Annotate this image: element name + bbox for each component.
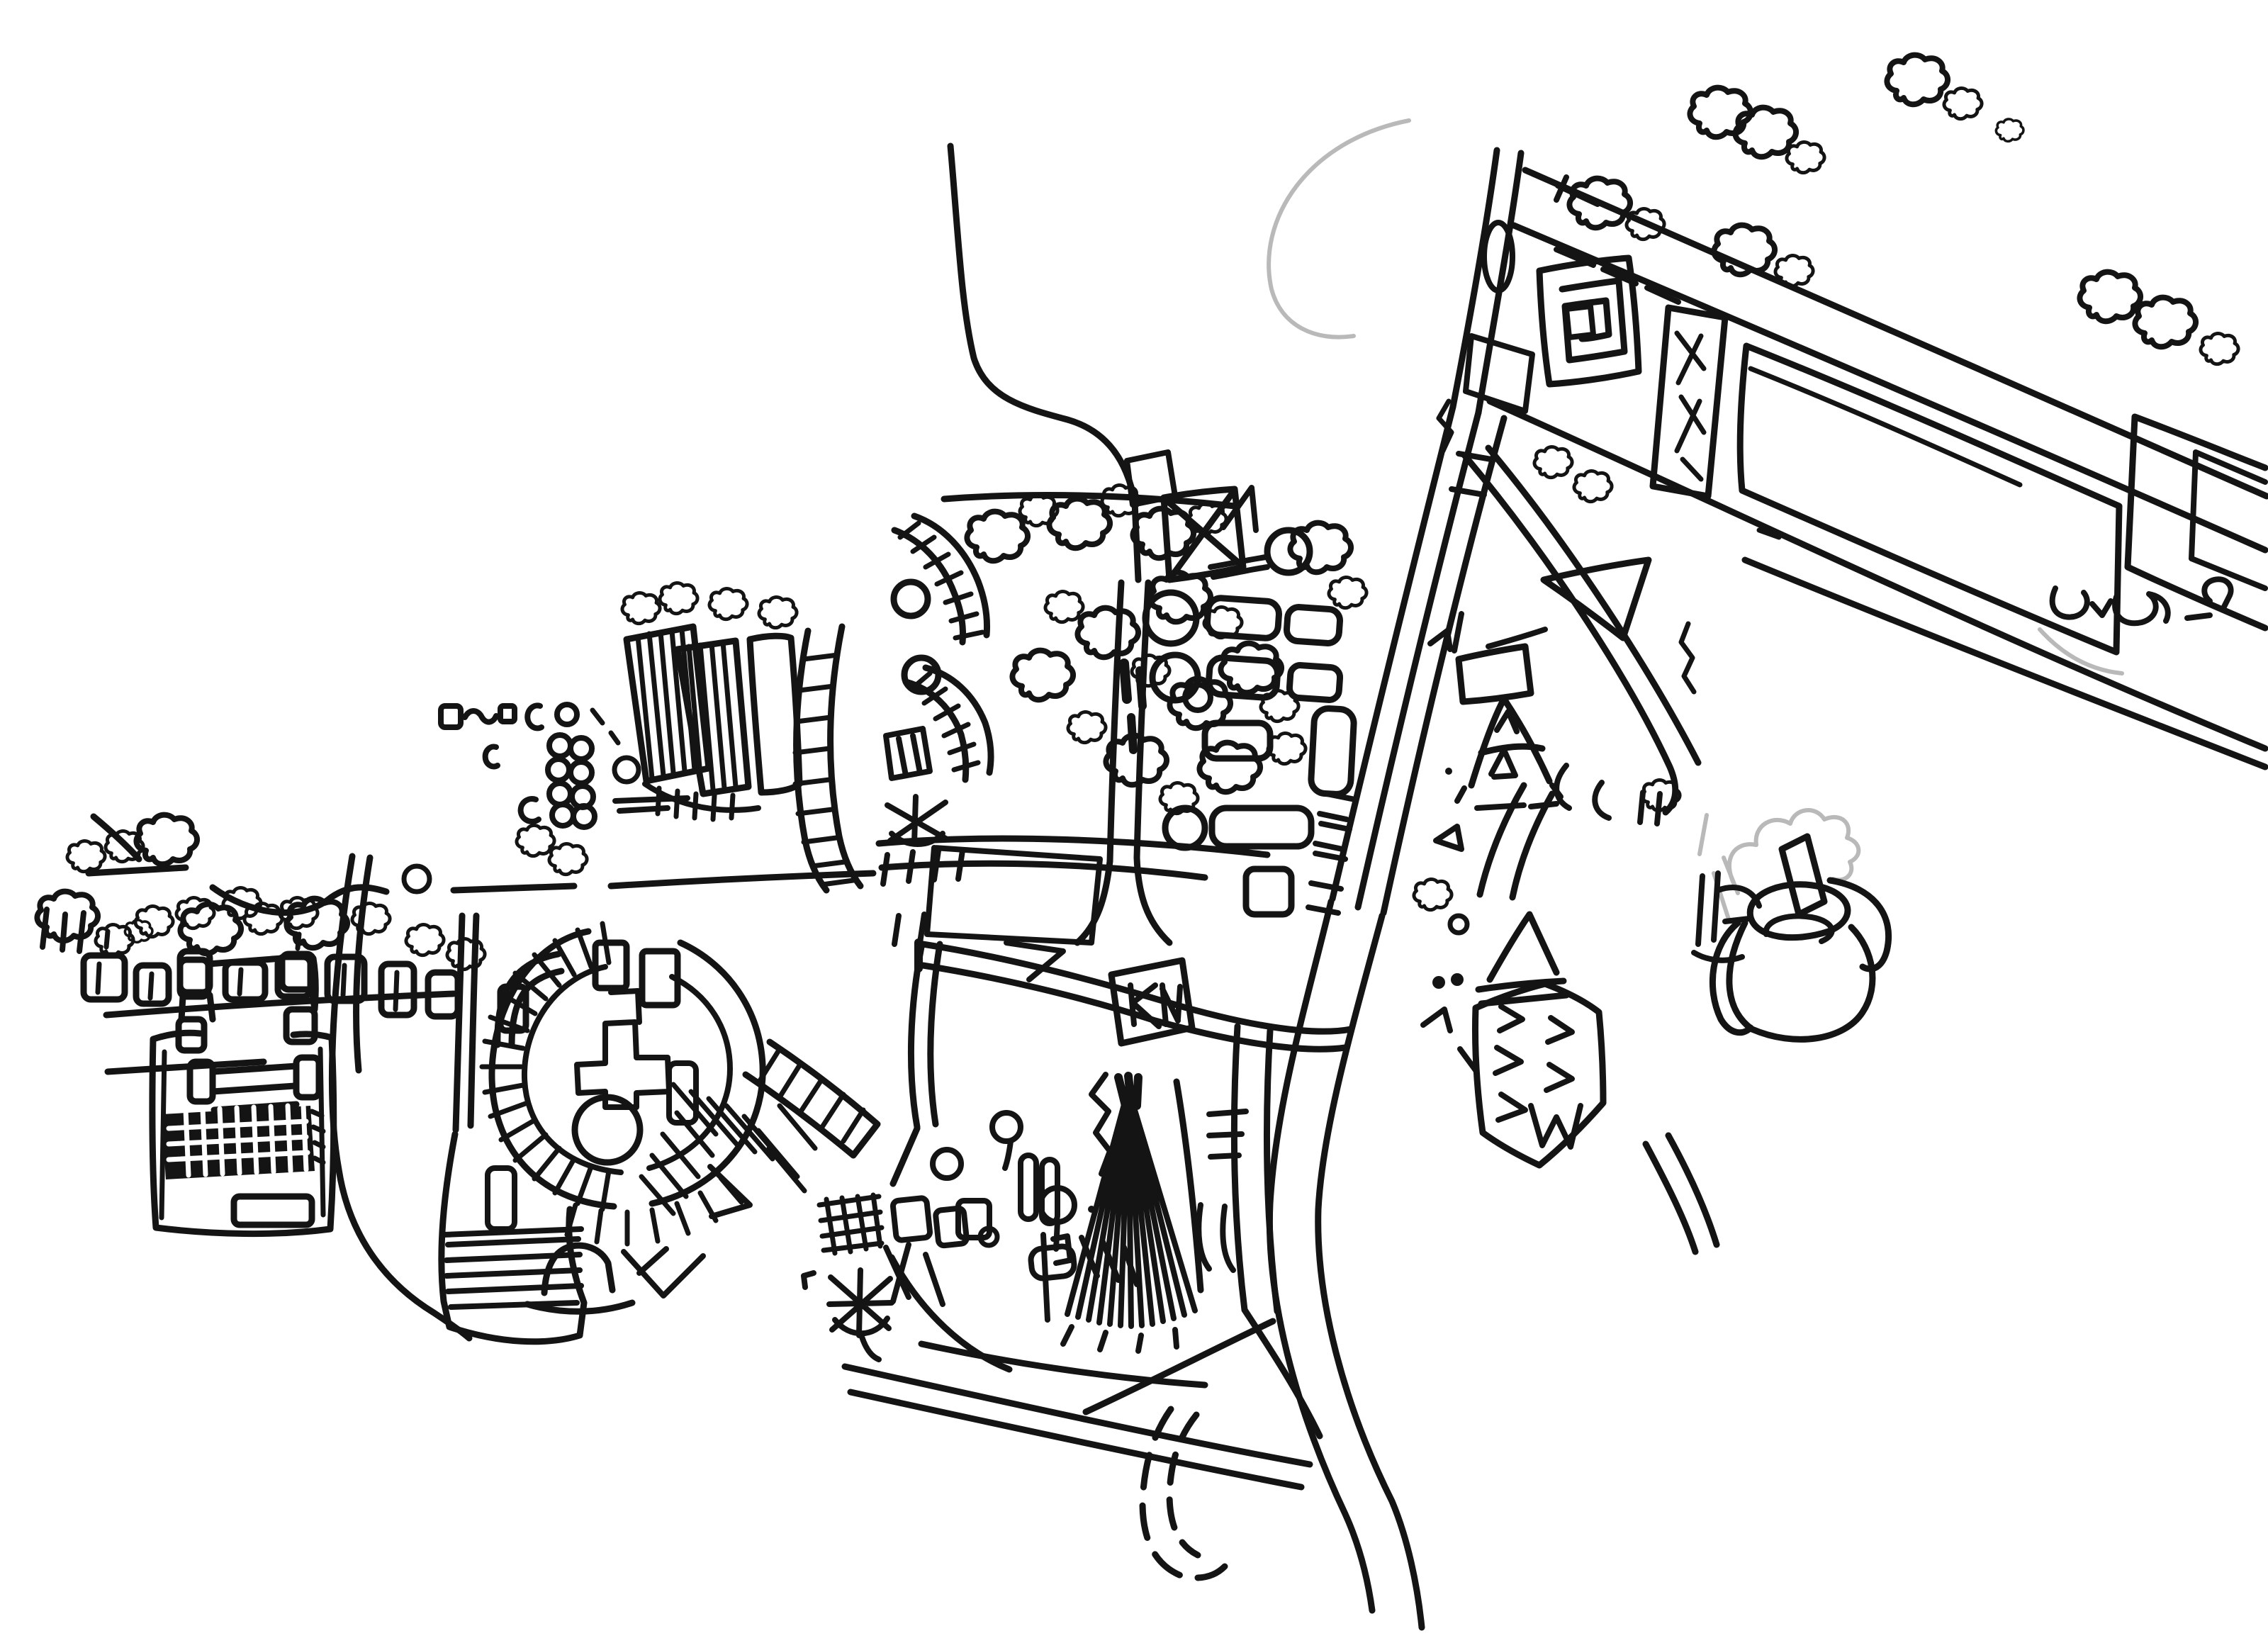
sketch-canvas [0, 0, 2268, 1643]
paper-background [0, 0, 2268, 1643]
scanned-sketch-page [0, 0, 2268, 1643]
fan-apex [1118, 1076, 1138, 1106]
heavy-dash [1124, 663, 1127, 699]
